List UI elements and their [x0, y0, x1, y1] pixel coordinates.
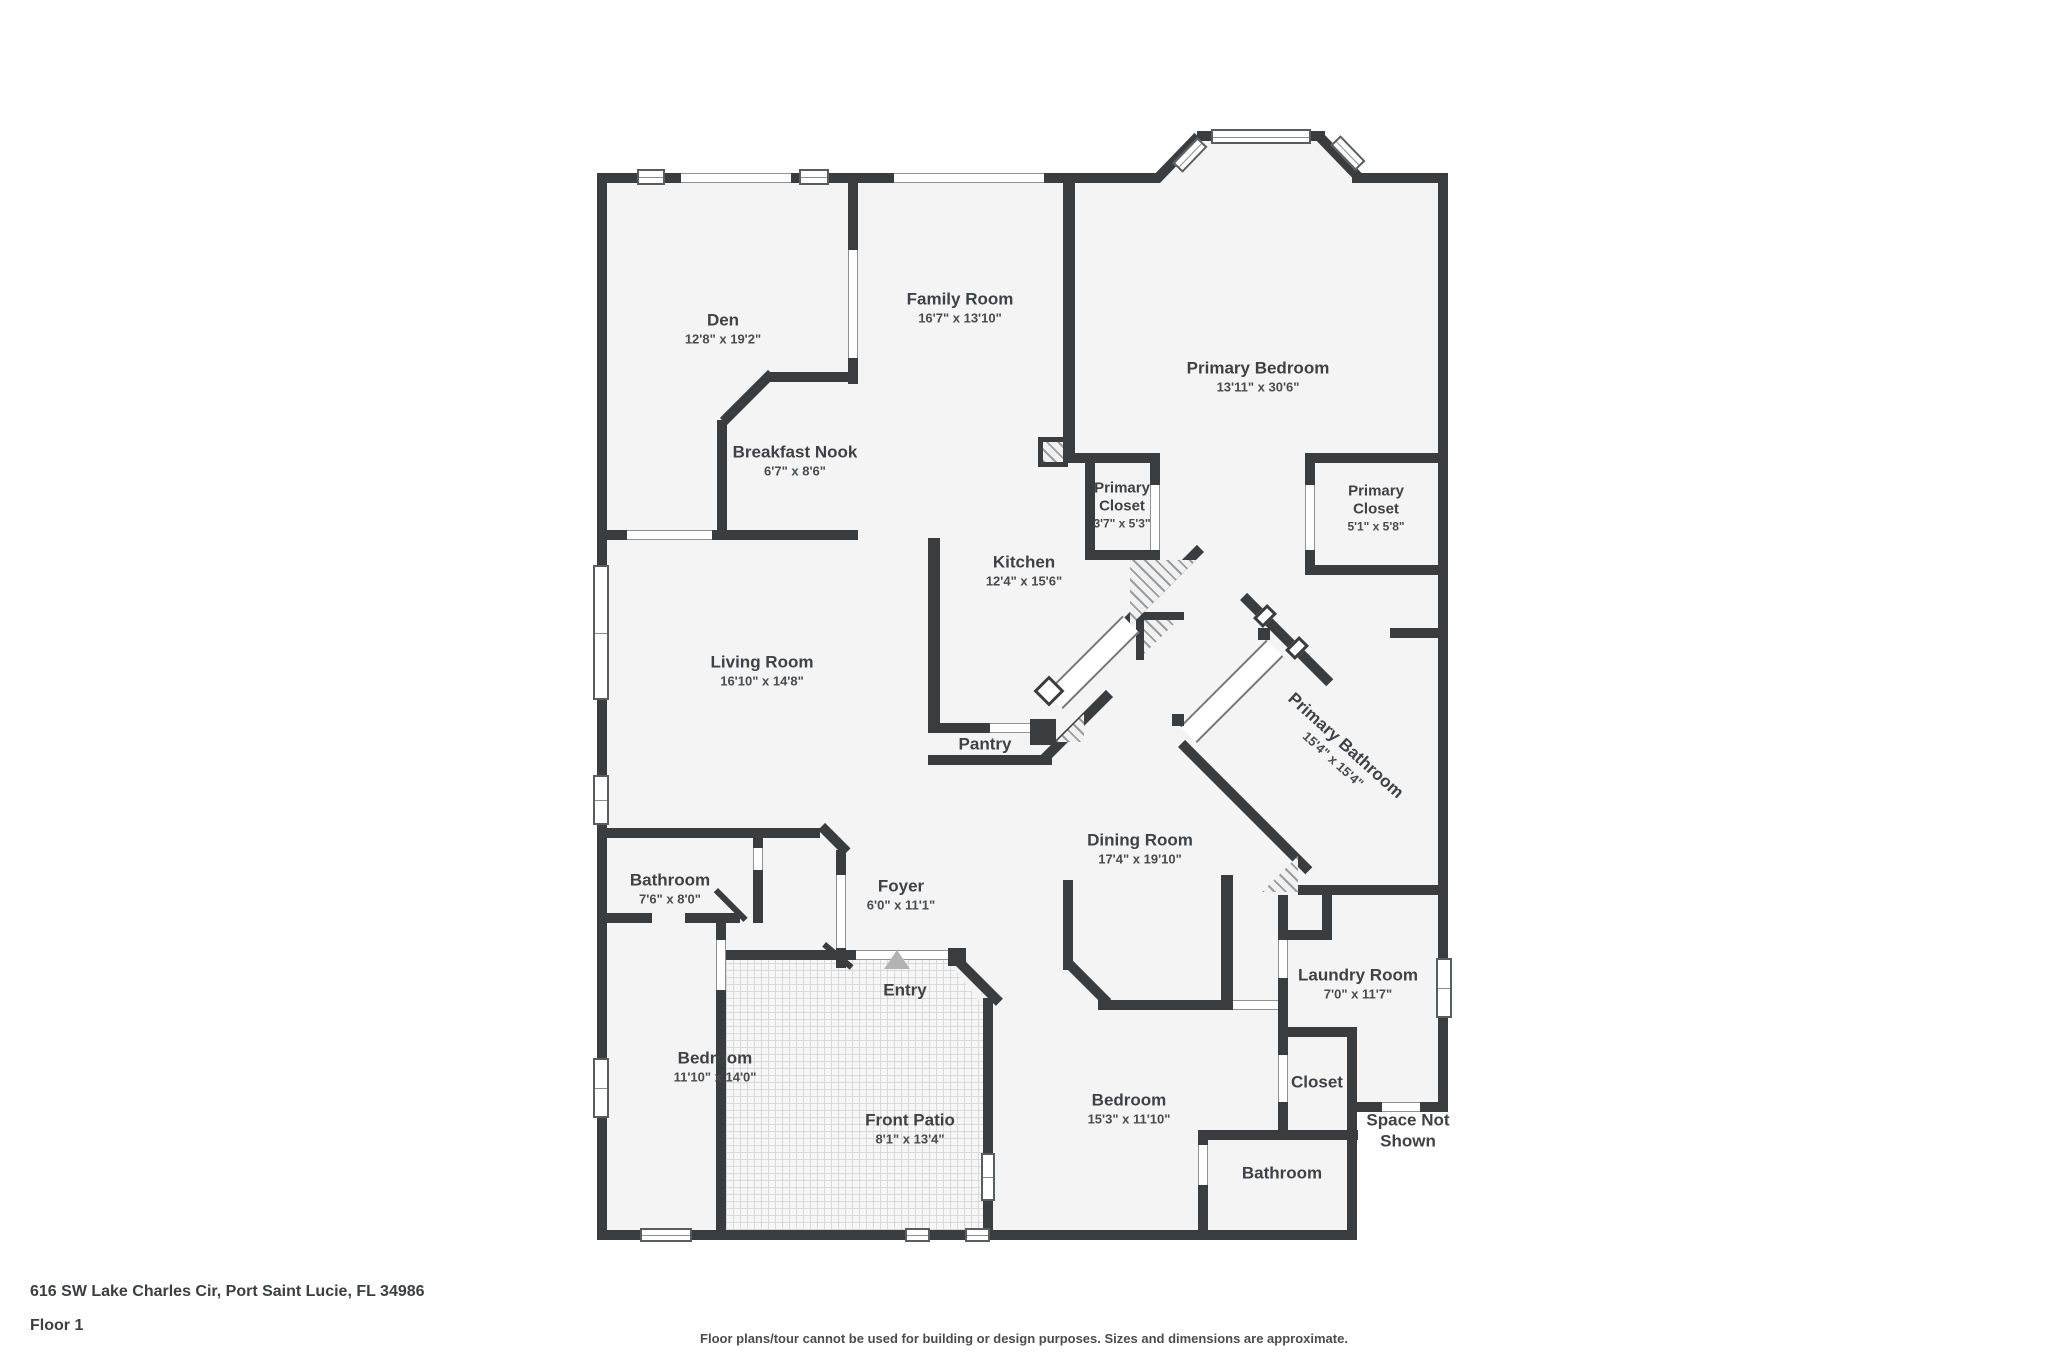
- wall: [928, 755, 1052, 765]
- window: [593, 775, 609, 825]
- wall: [1305, 565, 1448, 575]
- room-name: Breakfast Nook: [733, 443, 858, 464]
- room-name: Front Patio: [865, 1111, 955, 1132]
- wall: [928, 538, 940, 723]
- wall: [1305, 453, 1315, 485]
- door-opening: [990, 723, 1030, 733]
- room-label-primary-closet-1: Primary Closet 3'7" x 5'3": [1079, 479, 1165, 530]
- window: [637, 169, 665, 185]
- wall: [1136, 612, 1144, 660]
- wall: [1172, 714, 1184, 726]
- window: [593, 565, 609, 700]
- floor-plan: Den 12'8" x 19'2" Family Room 16'7" x 13…: [0, 0, 2048, 1365]
- room-label-foyer: Foyer 6'0" x 11'1": [867, 877, 935, 914]
- room-label-primary-bedroom: Primary Bedroom 13'11" x 30'6": [1187, 359, 1330, 396]
- wall: [1322, 895, 1332, 940]
- room-dims: 3'7" x 5'3": [1079, 516, 1165, 531]
- room-label-family-room: Family Room 16'7" x 13'10": [907, 290, 1014, 327]
- window: [593, 1058, 609, 1118]
- room-label-laundry-room: Laundry Room 7'0" x 11'7": [1298, 966, 1418, 1003]
- room-dims: 7'6" x 8'0": [630, 891, 710, 907]
- wall: [928, 723, 990, 733]
- room-dims: 17'4" x 19'10": [1087, 851, 1193, 867]
- room-label-entry: Entry: [883, 981, 926, 1002]
- entry-arrow-icon: [884, 950, 910, 969]
- window: [1211, 129, 1311, 144]
- room-name: Family Room: [907, 290, 1014, 311]
- room-name: Foyer: [867, 877, 935, 898]
- wall: [717, 420, 727, 540]
- disclaimer-text: Floor plans/tour cannot be used for buil…: [0, 1331, 2048, 1346]
- door-opening: [681, 173, 791, 183]
- room-dims: 16'7" x 13'10": [907, 310, 1014, 326]
- hatch-fixture: [1038, 437, 1068, 467]
- wall: [1198, 1130, 1208, 1145]
- room-name: Entry: [883, 981, 926, 1002]
- room-label-front-patio: Front Patio 8'1" x 13'4": [865, 1111, 955, 1148]
- wall: [767, 372, 858, 382]
- window: [1436, 958, 1452, 1018]
- wall: [1298, 885, 1448, 895]
- room-dims: 7'0" x 11'7": [1298, 986, 1418, 1002]
- door-opening: [894, 173, 1044, 183]
- room-label-breakfast-nook: Breakfast Nook 6'7" x 8'6": [733, 443, 858, 480]
- room-label-bathroom-2: Bathroom: [1242, 1164, 1322, 1185]
- wall: [597, 828, 820, 838]
- wall: [1063, 453, 1160, 463]
- room-name: Dining Room: [1087, 831, 1193, 852]
- room-name: Laundry Room: [1298, 966, 1418, 987]
- door-opening: [1198, 1145, 1208, 1185]
- door-opening: [1278, 1055, 1288, 1102]
- room-dims: 8'1" x 13'4": [865, 1131, 955, 1147]
- room-name: Bedroom: [1088, 1091, 1171, 1112]
- wall: [1221, 875, 1233, 1010]
- wall: [1198, 1130, 1358, 1140]
- patio-floor: [726, 960, 983, 1230]
- room-label-bedroom-2: Bedroom 15'3" x 11'10": [1088, 1091, 1171, 1128]
- room-name: Bedroom: [674, 1049, 757, 1070]
- room-label-bedroom-1: Bedroom 11'10" x 14'0": [674, 1049, 757, 1086]
- room-dims: 12'4" x 15'6": [986, 573, 1062, 589]
- room-label-den: Den 12'8" x 19'2": [685, 311, 761, 348]
- door-opening: [848, 250, 858, 358]
- room-name: Bathroom: [630, 871, 710, 892]
- room-name: Bathroom: [1242, 1164, 1322, 1185]
- window: [981, 1153, 995, 1201]
- room-label-kitchen: Kitchen 12'4" x 15'6": [986, 553, 1062, 590]
- room-label-dining-room: Dining Room 17'4" x 19'10": [1087, 831, 1193, 868]
- room-name: Den: [685, 311, 761, 332]
- wall: [1258, 628, 1270, 640]
- wall: [1278, 895, 1288, 940]
- wall: [1278, 1027, 1357, 1037]
- room-dims: 6'7" x 8'6": [733, 463, 858, 479]
- wall: [1030, 719, 1056, 745]
- room-label-space-not-shown: Space Not Shown: [1358, 1110, 1458, 1151]
- door-opening: [627, 530, 712, 540]
- room-label-pantry: Pantry: [959, 735, 1012, 756]
- door-opening: [836, 875, 846, 948]
- room-dims: 6'0" x 11'1": [867, 897, 935, 913]
- room-name: Kitchen: [986, 553, 1062, 574]
- room-name: Pantry: [959, 735, 1012, 756]
- room-dims: 12'8" x 19'2": [685, 331, 761, 347]
- door-opening: [1278, 940, 1288, 978]
- wall: [753, 870, 763, 923]
- wall: [1352, 173, 1448, 183]
- door-opening: [716, 940, 726, 990]
- wall: [753, 838, 763, 848]
- room-label-closet: Closet: [1291, 1073, 1343, 1094]
- room-name: Living Room: [711, 653, 814, 674]
- room-dims: 13'11" x 30'6": [1187, 379, 1330, 395]
- room-name: Closet: [1291, 1073, 1343, 1094]
- room-dims: 5'1" x 5'8": [1333, 519, 1419, 534]
- wall: [685, 913, 740, 923]
- wall: [1305, 453, 1448, 463]
- door-opening: [1233, 1000, 1278, 1010]
- room-name: Primary Closet: [1333, 482, 1419, 519]
- wall: [1063, 173, 1075, 463]
- room-name: Primary Closet: [1079, 479, 1165, 516]
- room-label-bathroom-1: Bathroom 7'6" x 8'0": [630, 871, 710, 908]
- wall: [716, 990, 726, 1240]
- wall: [597, 913, 652, 923]
- door-opening: [753, 848, 763, 870]
- wall: [1390, 628, 1448, 638]
- wall: [1198, 1185, 1208, 1240]
- wall: [1098, 1000, 1233, 1010]
- room-dims: 11'10" x 14'0": [674, 1069, 757, 1085]
- window: [905, 1228, 930, 1242]
- door-opening: [1305, 485, 1315, 550]
- window: [965, 1228, 990, 1242]
- address-text: 616 SW Lake Charles Cir, Port Saint Luci…: [30, 1283, 425, 1301]
- wall: [1085, 550, 1160, 560]
- room-label-primary-closet-2: Primary Closet 5'1" x 5'8": [1333, 482, 1419, 533]
- window: [799, 169, 829, 185]
- room-name: Primary Bedroom: [1187, 359, 1330, 380]
- room-dims: 15'3" x 11'10": [1088, 1111, 1171, 1127]
- room-dims: 16'10" x 14'8": [711, 673, 814, 689]
- room-name: Space Not Shown: [1358, 1110, 1458, 1151]
- wall: [1063, 880, 1073, 970]
- wall: [1278, 1027, 1288, 1055]
- window: [640, 1228, 692, 1242]
- room-label-living-room: Living Room 16'10" x 14'8": [711, 653, 814, 690]
- wall: [716, 923, 726, 940]
- wall: [848, 173, 858, 250]
